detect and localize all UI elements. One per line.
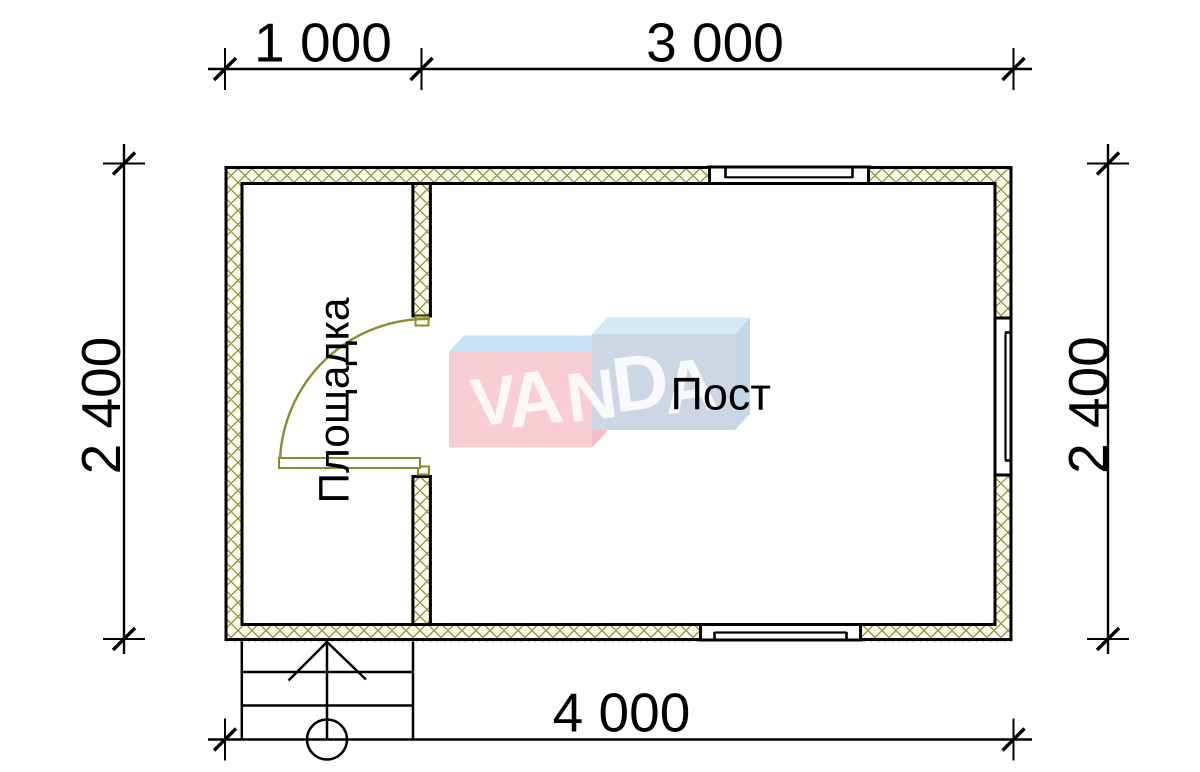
svg-text:2 400: 2 400 [1057, 336, 1119, 474]
svg-text:Площадка: Площадка [312, 297, 359, 503]
svg-text:2 400: 2 400 [70, 337, 132, 475]
svg-text:3 000: 3 000 [646, 12, 784, 74]
svg-text:4 000: 4 000 [553, 682, 691, 744]
svg-text:1 000: 1 000 [254, 12, 392, 74]
svg-text:A: A [502, 353, 568, 445]
svg-text:Пост: Пост [671, 369, 771, 420]
